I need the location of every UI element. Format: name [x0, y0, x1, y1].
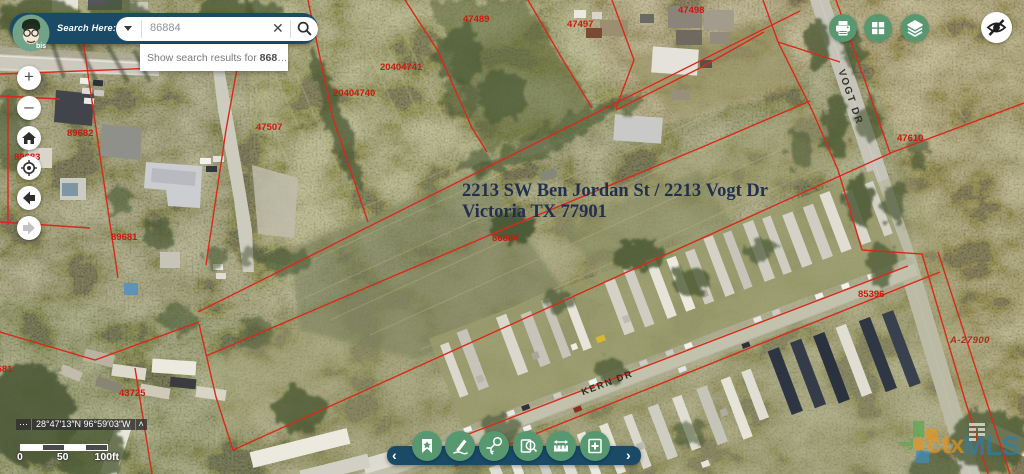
- svg-text:43725: 43725: [119, 388, 146, 399]
- svg-text:20404741: 20404741: [380, 62, 423, 73]
- svg-text:86884: 86884: [492, 233, 519, 244]
- svg-text:bis: bis: [36, 43, 46, 50]
- svg-text:2213 SW Ben Jordan St / 2213 V: 2213 SW Ben Jordan St / 2213 Vogt Dr: [462, 181, 768, 201]
- svg-text:47489: 47489: [463, 14, 489, 25]
- svg-text:47497: 47497: [567, 19, 593, 30]
- svg-text:47507: 47507: [256, 122, 282, 133]
- svg-text:Victoria TX 77901: Victoria TX 77901: [462, 202, 607, 222]
- svg-text:47581: 47581: [0, 364, 13, 375]
- svg-text:47610: 47610: [897, 133, 923, 144]
- svg-text:89682: 89682: [67, 128, 93, 139]
- svg-text:85396: 85396: [858, 289, 884, 300]
- svg-text:ctx: ctx: [927, 429, 965, 459]
- svg-text:20404740: 20404740: [333, 88, 375, 99]
- svg-text:89681: 89681: [111, 232, 138, 243]
- svg-text:47498: 47498: [678, 5, 704, 16]
- svg-text:A-27900: A-27900: [949, 335, 990, 346]
